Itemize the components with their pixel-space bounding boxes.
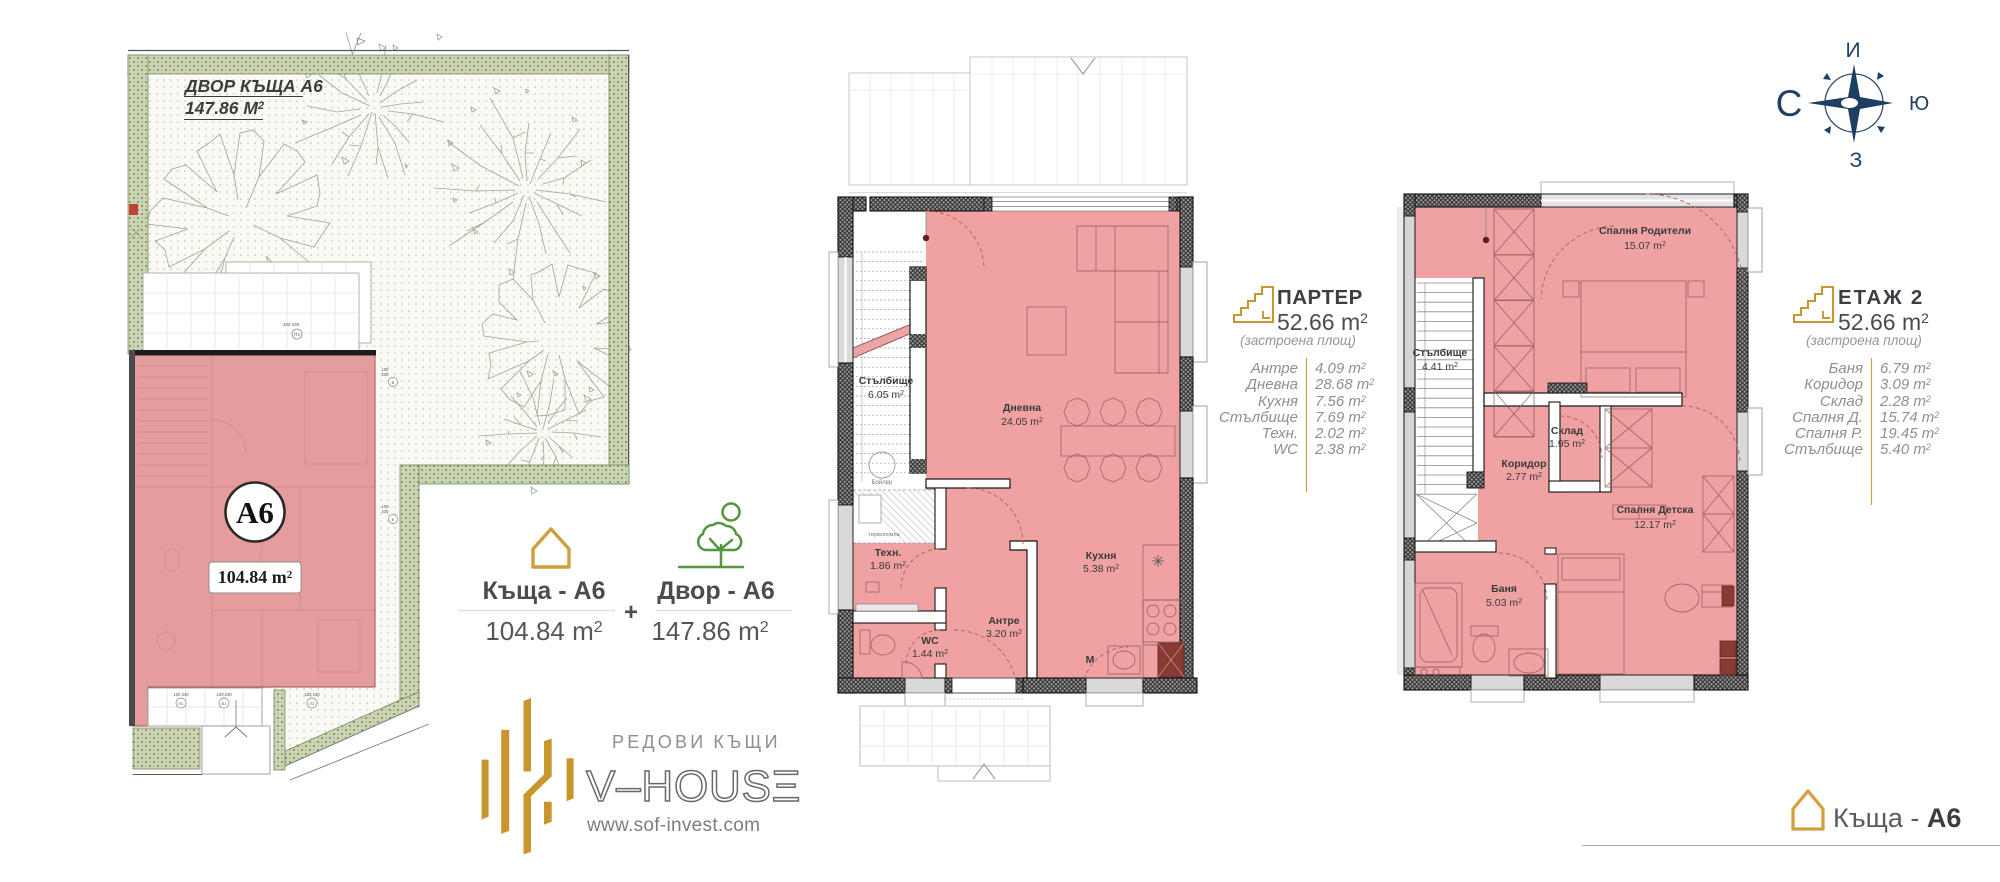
svg-text:(застроена площ): (застроена площ)	[1240, 333, 1356, 348]
svg-text:6.79 m2: 6.79 m2	[1880, 360, 1931, 377]
svg-text:Коридор: Коридор	[1501, 458, 1546, 470]
svg-text:Къща - А6: Къща - А6	[483, 577, 606, 605]
svg-text:С: С	[1776, 83, 1803, 124]
svg-text:термопомпа: термопомпа	[868, 532, 900, 538]
svg-text:Ю: Ю	[1909, 93, 1929, 115]
svg-text:В: В	[392, 380, 395, 385]
svg-text:Баня: Баня	[1491, 583, 1517, 595]
svg-text:230: 230	[382, 509, 390, 514]
svg-text:Спалня Родители: Спалня Родители	[1599, 225, 1691, 237]
svg-text:19.45 m2: 19.45 m2	[1880, 425, 1939, 442]
svg-text:V–HOUSΞ: V–HOUSΞ	[586, 762, 801, 811]
svg-text:Техн.: Техн.	[875, 547, 902, 559]
svg-text:1.44 m2: 1.44 m2	[912, 648, 948, 660]
svg-text:ЕТАЖ 2: ЕТАЖ 2	[1838, 286, 1924, 309]
svg-text:1.95 m2: 1.95 m2	[1549, 438, 1585, 450]
svg-text:2.28 m2: 2.28 m2	[1879, 393, 1931, 410]
svg-text:15.07 m2: 15.07 m2	[1624, 240, 1666, 252]
svg-text:WC: WC	[1273, 441, 1298, 458]
svg-text:www.sof-invest.com: www.sof-invest.com	[586, 815, 760, 836]
svg-text:2.02 m2: 2.02 m2	[1314, 425, 1366, 442]
svg-text:147.86 М2: 147.86 М2	[185, 98, 264, 118]
svg-text:104.84 m2: 104.84 m2	[218, 567, 293, 587]
svg-text:Антре: Антре	[988, 615, 1019, 627]
svg-text:24.05 m2: 24.05 m2	[1001, 416, 1043, 428]
svg-text:Стълбище: Стълбище	[859, 375, 914, 387]
svg-text:ПАРТЕР: ПАРТЕР	[1277, 286, 1363, 309]
svg-text:Кухня: Кухня	[1258, 393, 1298, 410]
svg-text:+: +	[624, 599, 638, 626]
svg-text:7.69 m2: 7.69 m2	[1315, 409, 1366, 426]
svg-text:Спалня Д.: Спалня Д.	[1792, 409, 1863, 426]
svg-text:П1: П1	[178, 701, 184, 706]
svg-text:Кухня: Кухня	[1086, 550, 1117, 562]
svg-text:РЕДОВИКЪЩИ: РЕДОВИКЪЩИ	[612, 732, 781, 752]
svg-text:147.86 m2: 147.86 m2	[651, 616, 768, 646]
svg-text:3.09 m2: 3.09 m2	[1880, 376, 1931, 393]
svg-text:6.05 m2: 6.05 m2	[868, 389, 904, 401]
svg-text:WC: WC	[921, 635, 939, 647]
svg-text:Склад: Склад	[1820, 393, 1863, 410]
svg-text:230: 230	[382, 372, 390, 377]
svg-text:А6: А6	[236, 495, 274, 530]
svg-text:5.38 m2: 5.38 m2	[1083, 563, 1119, 575]
svg-text:4.41 m2: 4.41 m2	[1422, 361, 1458, 373]
svg-text:З: З	[1850, 149, 1863, 172]
svg-text:Стълбище: Стълбище	[1784, 441, 1863, 458]
svg-text:1.86 m2: 1.86 m2	[870, 560, 906, 572]
svg-text:М: М	[1086, 654, 1095, 666]
svg-text:Стълбище: Стълбище	[1219, 409, 1298, 426]
svg-text:В1: В1	[222, 701, 228, 706]
svg-text:7.56 m2: 7.56 m2	[1315, 393, 1366, 410]
svg-text:Техн.: Техн.	[1262, 425, 1298, 442]
svg-text:15.74 m2: 15.74 m2	[1880, 409, 1939, 426]
svg-text:4.09 m2: 4.09 m2	[1315, 360, 1366, 377]
svg-text:Дневна: Дневна	[1244, 376, 1298, 393]
svg-text:Спалня Р.: Спалня Р.	[1795, 425, 1863, 442]
svg-text:ДВОР КЪЩА А6: ДВОР КЪЩА А6	[183, 76, 323, 96]
svg-text:Двор - А6: Двор - А6	[657, 577, 775, 605]
svg-text:100 240: 100 240	[216, 692, 232, 697]
svg-text:52.66 m2: 52.66 m2	[1838, 309, 1929, 335]
svg-text:330 230: 330 230	[283, 322, 300, 327]
svg-text:П4: П4	[294, 332, 300, 337]
svg-text:Дневна: Дневна	[1003, 402, 1041, 414]
svg-text:Бойлер: Бойлер	[872, 479, 893, 486]
svg-text:2.38 m2: 2.38 m2	[1314, 441, 1366, 458]
svg-text:2.77 m2: 2.77 m2	[1506, 471, 1542, 483]
svg-text:52.66 m2: 52.66 m2	[1277, 309, 1368, 335]
svg-text:104.84 m2: 104.84 m2	[485, 616, 602, 646]
svg-text:Коридор: Коридор	[1804, 376, 1863, 393]
svg-text:12.17 m2: 12.17 m2	[1634, 519, 1676, 531]
svg-text:5.03 m2: 5.03 m2	[1486, 597, 1522, 609]
svg-text:Баня: Баня	[1829, 360, 1863, 377]
svg-text:Къща - А6: Къща - А6	[1833, 803, 1961, 833]
svg-text:5.40 m2: 5.40 m2	[1880, 441, 1931, 458]
svg-text:Спалня Детска: Спалня Детска	[1616, 504, 1693, 516]
svg-text:Стълбище: Стълбище	[1413, 347, 1468, 359]
svg-text:3.20 m2: 3.20 m2	[986, 628, 1022, 640]
svg-text:Склад: Склад	[1551, 425, 1583, 437]
svg-text:(застроена площ): (застроена площ)	[1806, 333, 1922, 348]
svg-text:28.68 m2: 28.68 m2	[1314, 376, 1374, 393]
svg-text:П2: П2	[309, 701, 315, 706]
svg-text:Антре: Антре	[1250, 360, 1298, 377]
svg-text:Е: Е	[392, 517, 395, 522]
svg-text:100 240: 100 240	[304, 692, 320, 697]
svg-text:И: И	[1845, 39, 1860, 62]
svg-text:100 240: 100 240	[173, 692, 189, 697]
